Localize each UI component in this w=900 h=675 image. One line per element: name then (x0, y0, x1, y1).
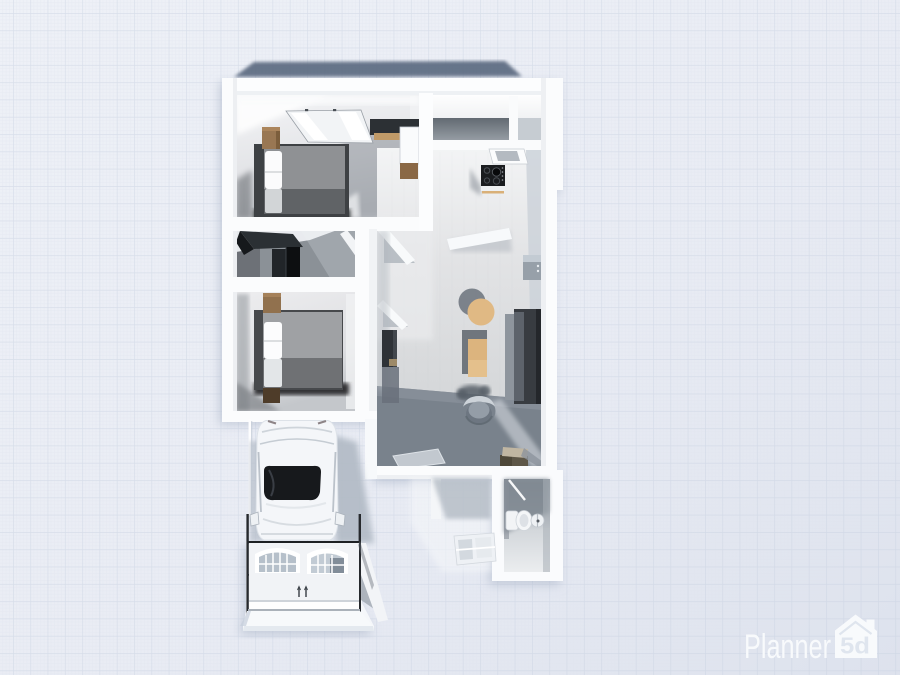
svg-text:Planner: Planner (744, 628, 831, 666)
svg-text:5d: 5d (840, 633, 870, 659)
